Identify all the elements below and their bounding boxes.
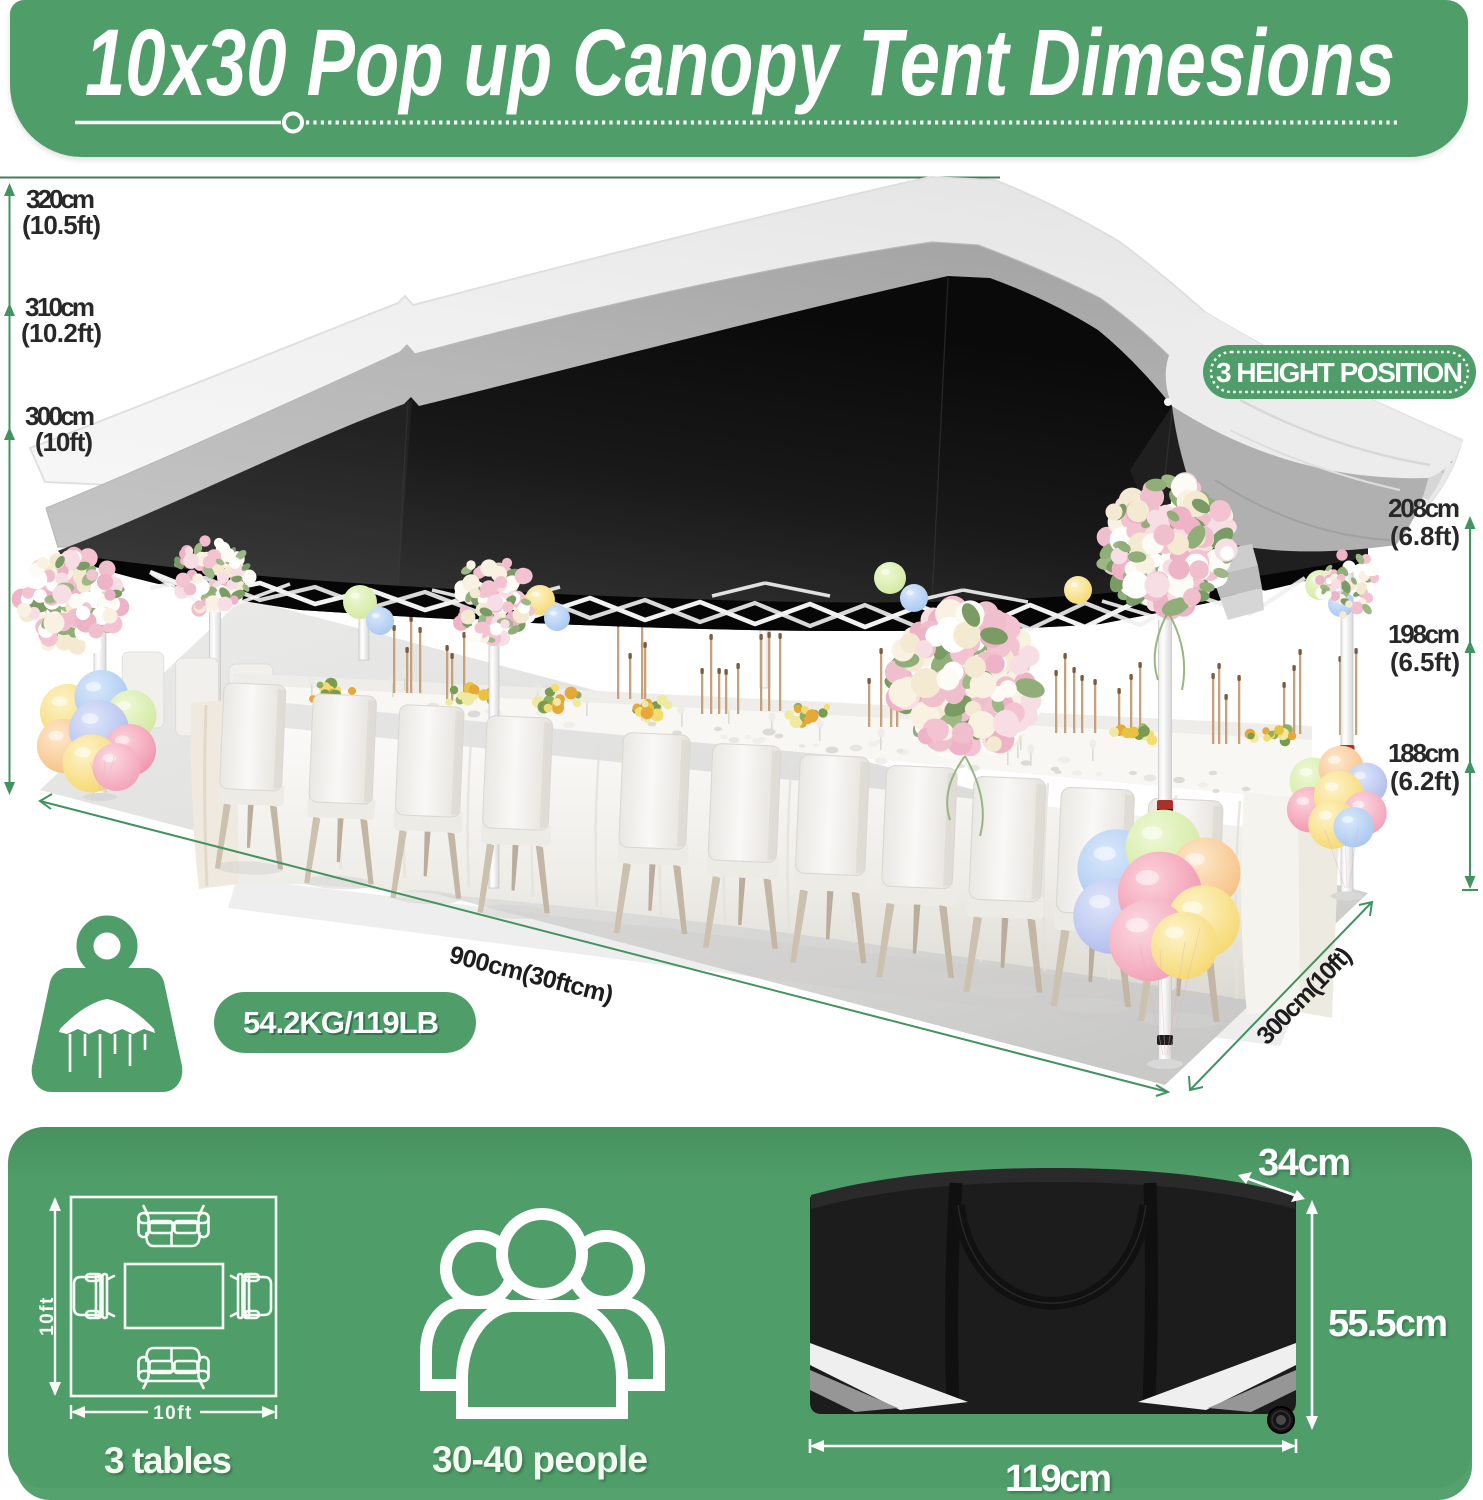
svg-text:10ft: 10ft (153, 1403, 193, 1424)
svg-text:55.5cm: 55.5cm (1328, 1303, 1448, 1345)
svg-text:198cm: 198cm (1388, 619, 1460, 649)
svg-text:54.2KG/119LB: 54.2KG/119LB (243, 1005, 439, 1040)
svg-text:(10.2ft): (10.2ft) (21, 318, 102, 348)
svg-text:188cm: 188cm (1388, 738, 1460, 768)
svg-text:119cm: 119cm (1005, 1458, 1112, 1500)
svg-text:34cm: 34cm (1258, 1142, 1351, 1184)
svg-text:(10ft): (10ft) (35, 427, 93, 457)
svg-text:(10.5ft): (10.5ft) (22, 210, 101, 240)
svg-text:(6.8ft): (6.8ft) (1390, 521, 1460, 551)
svg-text:3 HEIGHT POSITION: 3 HEIGHT POSITION (1216, 357, 1463, 388)
svg-text:3 tables: 3 tables (104, 1440, 232, 1481)
svg-text:30-40 people: 30-40 people (432, 1439, 648, 1480)
svg-text:10ft: 10ft (37, 1296, 58, 1336)
svg-text:10x30 Pop up Canopy Tent Dimes: 10x30 Pop up Canopy Tent Dimesions (85, 10, 1395, 116)
svg-text:(6.5ft): (6.5ft) (1390, 647, 1460, 677)
svg-text:208cm: 208cm (1388, 493, 1460, 523)
svg-text:(6.2ft): (6.2ft) (1390, 766, 1460, 796)
